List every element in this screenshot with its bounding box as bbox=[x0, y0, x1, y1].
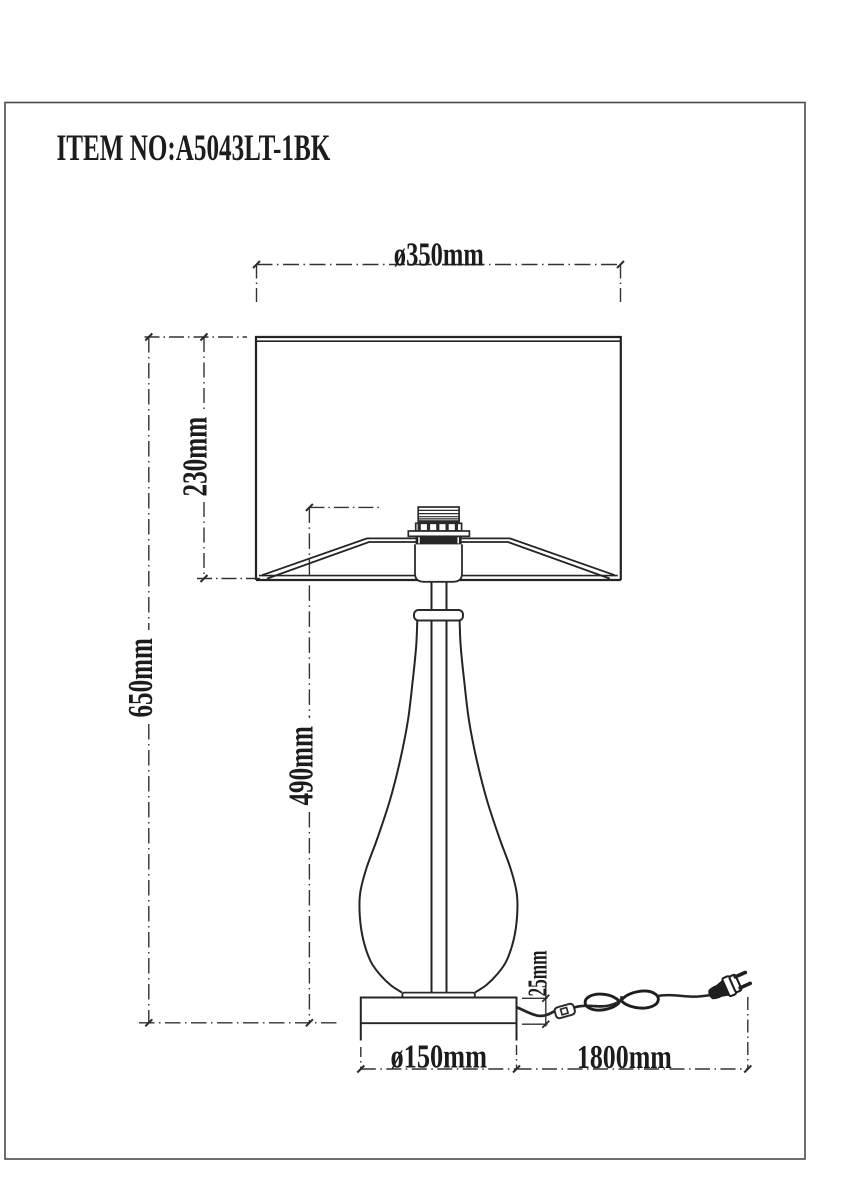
svg-text:490mm: 490mm bbox=[282, 726, 321, 805]
svg-text:ø350mm: ø350mm bbox=[394, 237, 484, 274]
svg-text:1800mm: 1800mm bbox=[577, 1038, 672, 1076]
svg-text:230mm: 230mm bbox=[176, 417, 215, 497]
svg-text:ITEM NO:A5043LT-1BK: ITEM NO:A5043LT-1BK bbox=[57, 127, 331, 168]
svg-text:650mm: 650mm bbox=[121, 638, 160, 717]
svg-text:ø150mm: ø150mm bbox=[391, 1037, 488, 1075]
svg-text:25mm: 25mm bbox=[523, 950, 553, 996]
